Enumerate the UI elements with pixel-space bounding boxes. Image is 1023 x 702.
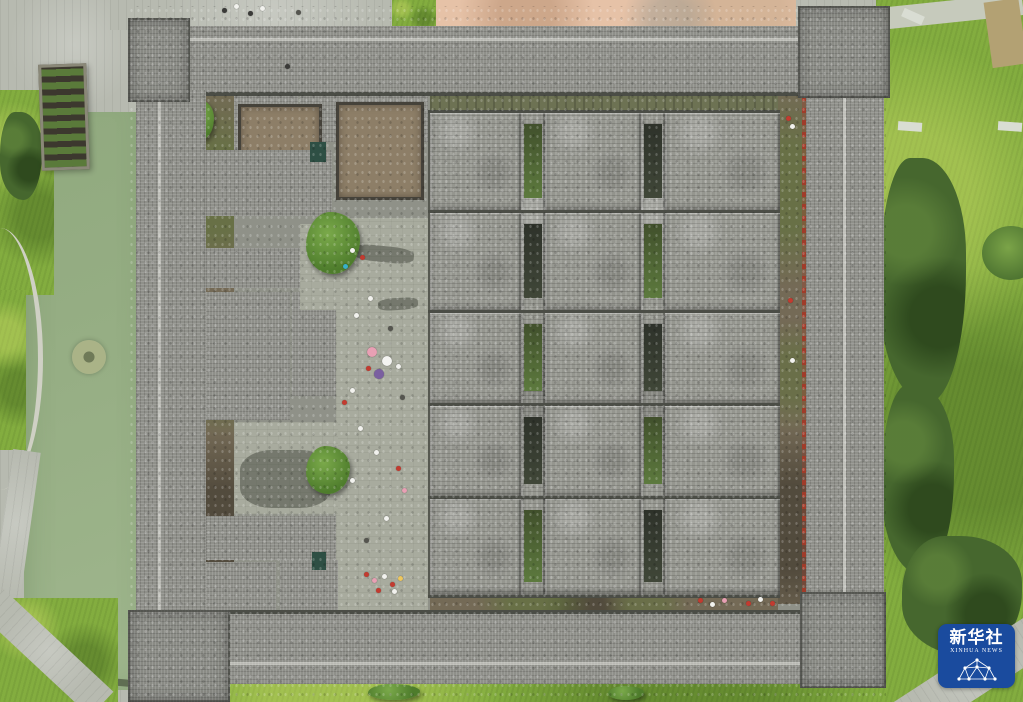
roof-eave-line-1 [428,310,780,313]
person-dot-20 [358,426,363,431]
north-wall-eave [180,92,812,96]
south-wall-roof [180,612,812,684]
person-dot-40 [786,116,791,121]
person-dot-16 [396,364,401,369]
roof-block-r0-c1 [545,112,641,212]
person-dot-33 [392,589,397,594]
bench-3 [998,121,1023,132]
east-wall-ridge [843,88,846,602]
corner-tower-se [800,592,886,688]
central-courtyard [336,218,428,614]
light-well-r2-c1 [644,324,662,391]
skylight-teal-2 [312,552,326,570]
person-dot-32 [376,588,381,593]
roof-block-r2-c0 [430,312,521,405]
roof-eave-line-3 [428,496,780,499]
hall-roof-8 [206,562,276,612]
north-wall-roof [180,26,812,96]
roof-block-r4-c1 [545,498,641,596]
person-dot-28 [372,578,377,583]
person-dot-8 [343,264,348,269]
roof-block-r3-c2 [665,405,780,498]
courtyard-dirt-2 [336,102,424,200]
west-wall-ridge [158,90,161,618]
person-dot-31 [398,576,403,581]
person-dot-6 [350,248,355,253]
roof-block-r1-c1 [545,212,641,312]
person-dot-2 [248,11,253,16]
west-wall-roof [136,90,206,618]
shrub-band-right-1 [880,158,966,403]
roof-block-r3-c0 [430,405,521,498]
person-dot-30 [390,582,395,587]
person-dot-13 [382,356,392,366]
hall-roof-5 [206,292,290,420]
south-wall-eave [180,610,812,614]
person-dot-21 [374,450,379,455]
person-dot-38 [758,597,763,602]
person-dot-1 [234,4,239,9]
person-dot-26 [364,538,369,543]
person-dot-39 [770,601,775,606]
person-dot-25 [384,516,389,521]
person-dot-29 [382,574,387,579]
roof-block-r0-c2 [665,112,780,212]
vegetable-garden-plot [38,63,90,171]
south-wall-ridge [180,662,812,665]
watermark-chinese-text: 新华社 [950,629,1004,647]
person-dot-10 [354,313,359,318]
light-well-r3-c0 [524,417,542,484]
roof-eave-line-top [428,110,780,113]
corner-tower-ne [798,6,890,98]
roof-block-r3-c1 [545,405,641,498]
person-dot-42 [788,298,793,303]
grass-below-south-wall [182,684,878,702]
shrub-left [0,112,42,200]
light-well-r0-c0 [524,124,542,198]
roof-eave-line-0 [428,210,780,213]
person-dot-0 [222,8,227,13]
light-well-r4-c1 [644,510,662,582]
roof-eave-line-2 [428,403,780,406]
light-well-r3-c1 [644,417,662,484]
person-dot-24 [402,488,407,493]
roof-block-r4-c0 [430,498,521,596]
network-globe-icon [955,657,999,683]
person-dot-11 [388,326,393,331]
roof-block-r0-c0 [430,112,521,212]
person-dot-35 [710,602,715,607]
person-dot-7 [360,255,365,260]
roof-eave-line-bottom [428,595,780,598]
person-dot-12 [367,347,377,357]
person-dot-3 [260,6,265,11]
roof-block-r2-c2 [665,312,780,405]
person-dot-4 [296,10,301,15]
light-well-r4-c0 [524,510,542,582]
xinhua-news-watermark: 新华社 XINHUA NEWS [938,624,1015,688]
person-dot-23 [350,478,355,483]
red-railing [802,96,806,602]
person-dot-14 [374,369,384,379]
person-dot-5 [285,64,290,69]
light-well-r1-c0 [524,224,542,298]
person-dot-9 [368,296,373,301]
person-dot-34 [698,598,703,603]
watermark-english-text: XINHUA NEWS [950,648,1003,654]
person-dot-41 [790,124,795,129]
light-well-r2-c0 [524,324,542,391]
light-well-r0-c1 [644,124,662,198]
person-dot-17 [350,388,355,393]
aerial-photo-scene: 新华社 XINHUA NEWS [0,0,1023,702]
person-dot-43 [790,358,795,363]
roof-block-r4-c2 [665,498,780,596]
corner-tower-nw [128,18,190,102]
skylight-teal-1 [310,142,326,162]
person-dot-27 [364,572,369,577]
roof-block-r1-c2 [665,212,780,312]
bench-2 [898,121,923,132]
person-dot-15 [366,366,371,371]
roof-block-r1-c0 [430,212,521,312]
corner-tower-sw [128,610,230,702]
roof-block-r2-c1 [545,312,641,405]
hall-roof-9 [280,560,338,612]
person-dot-22 [396,466,401,471]
person-dot-18 [342,400,347,405]
person-dot-19 [400,395,405,400]
light-well-r1-c1 [644,224,662,298]
pond-fountain [72,340,106,374]
north-wall-ridge [180,38,812,41]
person-dot-36 [722,598,727,603]
person-dot-37 [746,601,751,606]
